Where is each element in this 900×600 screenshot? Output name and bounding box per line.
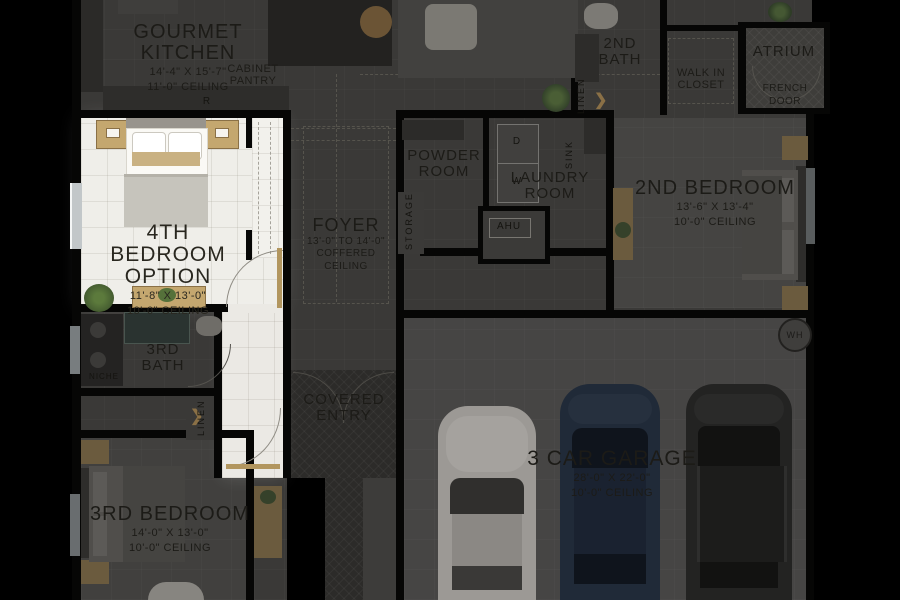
dryer-marker: D [497, 136, 537, 147]
laundry-sink-counter [584, 118, 606, 154]
closet-rod-dash [258, 122, 259, 254]
bed-pillow [782, 230, 794, 274]
window [70, 494, 80, 556]
exterior-dark-patch [287, 478, 325, 600]
sink-basin [90, 352, 106, 368]
fourth-bedroom-closet-floor [252, 118, 283, 258]
room-label-powder-room: POWDER ROOM [404, 148, 484, 180]
wall-segment [738, 22, 830, 28]
nightstand [782, 286, 808, 310]
ahu-marker: AHU [489, 221, 529, 232]
linen-marker: LINEN [196, 398, 206, 438]
wall-segment [396, 310, 404, 600]
bed-blanket [124, 174, 208, 227]
wall-segment [72, 110, 291, 118]
wall-segment [72, 388, 222, 396]
nightstand [782, 136, 808, 160]
room-label-4th-bedroom-option: 4TH BEDROOM OPTION 11'-8" X 13'-0" 10'-0… [88, 222, 248, 317]
water-heater-circle: WH [778, 318, 812, 352]
water-heater-label: WH [787, 330, 804, 340]
room-label-laundry-room: LAUNDRY ROOM [498, 170, 602, 202]
wall-segment [396, 310, 812, 318]
car-roof [697, 466, 787, 562]
car-windshield [450, 478, 524, 514]
bed-headboard [126, 118, 206, 128]
window [806, 168, 815, 244]
niche-marker: NICHE [82, 372, 126, 381]
room-label-2nd-bedroom: 2ND BEDROOM 13'-6" X 13'-4" 10'-0" CEILI… [625, 178, 805, 228]
nightstand-knob [106, 128, 120, 138]
car-roof [452, 514, 522, 566]
nightstand [81, 560, 109, 584]
armchair [425, 4, 477, 50]
room-label-garage: 3 CAR GARAGE 28'-0" X 22'-0" 10'-0" CEIL… [520, 448, 704, 499]
car-rear-glass [574, 554, 646, 584]
linen-chevron-icon: ❯ [594, 90, 614, 110]
wall-segment [746, 108, 830, 114]
room-label-cabinet-pantry: CABINET PANTRY [216, 64, 290, 87]
wall-segment [824, 22, 830, 114]
floor-plan: ❯ ❯ [0, 0, 900, 600]
nightstand [81, 440, 109, 464]
label-french-door: FRENCH DOOR [750, 82, 820, 107]
side-table [360, 6, 392, 38]
round-seat [148, 582, 204, 600]
entry-walkway [325, 478, 363, 600]
walkway-step-strip [363, 478, 396, 600]
room-label-2nd-bath: 2ND BATH [584, 36, 656, 68]
wall-segment [246, 118, 252, 148]
linen-marker: LINEN [576, 86, 586, 114]
sink-basin [90, 322, 106, 338]
room-label-walk-in-closet: WALK IN CLOSET [662, 68, 740, 91]
car-windshield [698, 426, 780, 466]
room-label-3rd-bath: 3RD BATH [128, 342, 198, 374]
car-white [438, 406, 536, 600]
potted-plant [260, 490, 276, 504]
toilet [196, 316, 222, 336]
wall-segment [660, 0, 667, 115]
wall-segment [283, 110, 291, 312]
potted-plant [768, 2, 792, 22]
nightstand-knob [215, 128, 229, 138]
window [70, 183, 82, 249]
wall-segment [283, 312, 291, 478]
room-label-atrium: ATRIUM [744, 44, 824, 60]
sink-marker: SINK [564, 134, 574, 174]
bedroom-door-leaf [277, 248, 282, 308]
room-label-foyer: FOYER 13'-0" TO 14'-0" COFFERED CEILING [296, 216, 396, 272]
wall-segment [660, 25, 745, 31]
wall-segment [72, 430, 246, 438]
car-rear-glass [700, 562, 778, 588]
closet-rod-dash [270, 122, 271, 254]
car-hood [446, 416, 528, 472]
car-hood [568, 394, 652, 424]
window [70, 326, 80, 374]
car-rear-glass [452, 566, 522, 590]
car-hood [694, 394, 784, 424]
refrigerator-marker: R [198, 96, 216, 107]
room-label-3rd-bedroom: 3RD BEDROOM 14'-0" X 13'-0" 10'-0" CEILI… [84, 504, 256, 554]
room-label-covered-entry: COVERED ENTRY [294, 392, 394, 424]
powder-vanity [402, 120, 464, 140]
toilet [584, 3, 618, 29]
bed-runner [132, 152, 200, 166]
storage-marker: STORAGE [404, 198, 414, 250]
range-appliance [118, 0, 178, 14]
potted-plant [542, 84, 570, 112]
front-door-leaf [226, 464, 280, 469]
